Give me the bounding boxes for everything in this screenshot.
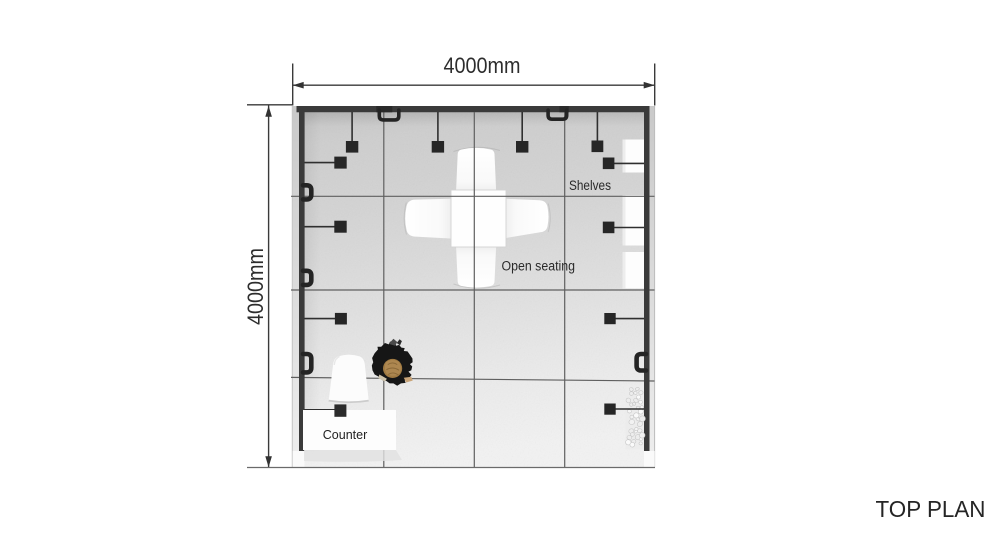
svg-text:4000mm: 4000mm — [243, 248, 268, 325]
svg-text:Open seating: Open seating — [502, 259, 576, 274]
svg-text:Shelves: Shelves — [569, 178, 611, 193]
svg-text:TOP PLAN: TOP PLAN — [876, 496, 986, 522]
svg-text:4000mm: 4000mm — [444, 53, 521, 78]
svg-text:Counter: Counter — [323, 427, 368, 442]
